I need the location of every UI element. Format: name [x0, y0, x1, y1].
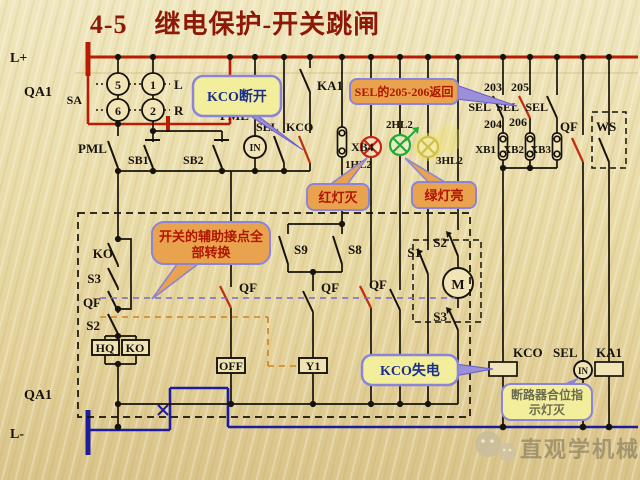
slide: 4-5 继电保护-开关跳闸 [0, 0, 640, 480]
y1-box-label: Y1 [306, 359, 321, 373]
coils [489, 362, 623, 376]
pml-in-lamp-label: IN [249, 143, 261, 154]
qf-top-label: QF [560, 119, 578, 134]
callout-red-lamp-text: 红灯灭 [318, 190, 358, 205]
s9-label: S9 [294, 242, 308, 257]
sa-label: SA [67, 93, 83, 107]
callout-aux-line2: 部转换 [191, 245, 231, 260]
s3-left-label: S3 [87, 271, 101, 286]
n205-label: 205 [511, 80, 529, 94]
xb2-label: XB2 [503, 144, 524, 156]
ka1-bottom-label: KA1 [596, 345, 622, 360]
ko-box-label: KO [126, 341, 145, 355]
hl3-label: 3HL2 [436, 155, 463, 167]
fuse-xb4 [338, 127, 347, 157]
sa-contact-2-label: 2 [150, 104, 156, 118]
sel3-label: SEL [525, 100, 548, 114]
callout-breaker: 断路器合位指 示灯灭 [502, 377, 592, 420]
sa-selector: 5 1 6 2 L R SA [67, 73, 184, 121]
wechat-icon [475, 431, 516, 461]
kco-bottom-label: KCO [513, 345, 543, 360]
l-minus-label: L- [10, 427, 24, 442]
sb1-label: SB1 [128, 153, 149, 167]
hq-box-label: HQ [96, 341, 115, 355]
ko-switch-label: KO [93, 246, 113, 261]
qa1-bottom-label: QA1 [24, 388, 52, 403]
callout-red-lamp: 红灯灭 [307, 158, 369, 210]
aux-contact-box [78, 213, 470, 417]
green-arrow [405, 131, 415, 141]
ka1-coil [595, 362, 623, 376]
callout-breaker-line2: 示灯灭 [528, 402, 566, 417]
n206-label: 206 [509, 115, 527, 129]
motor-label: M [451, 278, 464, 293]
dashed-regions [78, 112, 626, 417]
sa-contact-6-label: 6 [115, 104, 121, 118]
ws-label: WS [596, 119, 616, 134]
xb1-label: XB1 [475, 144, 496, 156]
watermark-text: 直观学机械 [520, 437, 640, 462]
s2-left-label: S2 [86, 318, 100, 333]
callout-kco-open-text: KCO断开 [207, 88, 267, 105]
qf-b-label: QF [321, 280, 339, 295]
sa-contact-5-label: 5 [115, 78, 121, 92]
callout-sel-return-text: SEL的205-206返回 [355, 84, 454, 99]
callout-kco-loss: KCO失电 [362, 355, 493, 385]
hl2-label: 2HL2 [386, 119, 413, 131]
motor: M [443, 268, 473, 298]
qf-c-label: QF [369, 277, 387, 292]
sa-right-label: R [174, 103, 184, 118]
qa1-top-label: QA1 [24, 85, 52, 100]
fuse-xb3 [553, 133, 562, 160]
circuit-diagram: 5 1 6 2 L R SA IN [0, 0, 640, 480]
callout-breaker-line1: 断路器合位指 [511, 387, 583, 402]
qf-a-label: QF [239, 280, 257, 295]
callout-green-lamp-text: 绿灯亮 [424, 188, 463, 203]
xb3-label: XB3 [530, 144, 551, 156]
breaker-in-lamp-label: IN [578, 366, 589, 376]
sa-left-label: L [174, 77, 183, 92]
n203-label: 203 [484, 80, 502, 94]
s2-right-label: S2 [433, 235, 447, 250]
s8-label: S8 [348, 242, 362, 257]
qa1-contact-mark [158, 405, 168, 415]
sa-contact-1-label: 1 [150, 78, 156, 92]
l-plus-label: L+ [10, 51, 27, 66]
sel-bottom-label: SEL [553, 345, 578, 360]
callout-aux-line1: 开关的辅助接点全 [159, 229, 264, 244]
xb4-label: XB4 [351, 140, 374, 154]
pml-left-label: PML [78, 141, 107, 156]
callout-kco-loss-text: KCO失电 [380, 362, 440, 379]
ka1-top-label: KA1 [317, 78, 343, 93]
watermark: 直观学机械 [475, 431, 640, 462]
n204-label: 204 [484, 117, 502, 131]
qf-left-label: QF [83, 295, 101, 310]
sb2-label: SB2 [183, 153, 204, 167]
off-box-label: OFF [219, 359, 243, 373]
s3-right-label: S3 [433, 309, 447, 324]
s1-label: S1 [407, 245, 421, 260]
kco-coil [489, 362, 517, 376]
kco-mid-label: KCO [286, 120, 313, 134]
